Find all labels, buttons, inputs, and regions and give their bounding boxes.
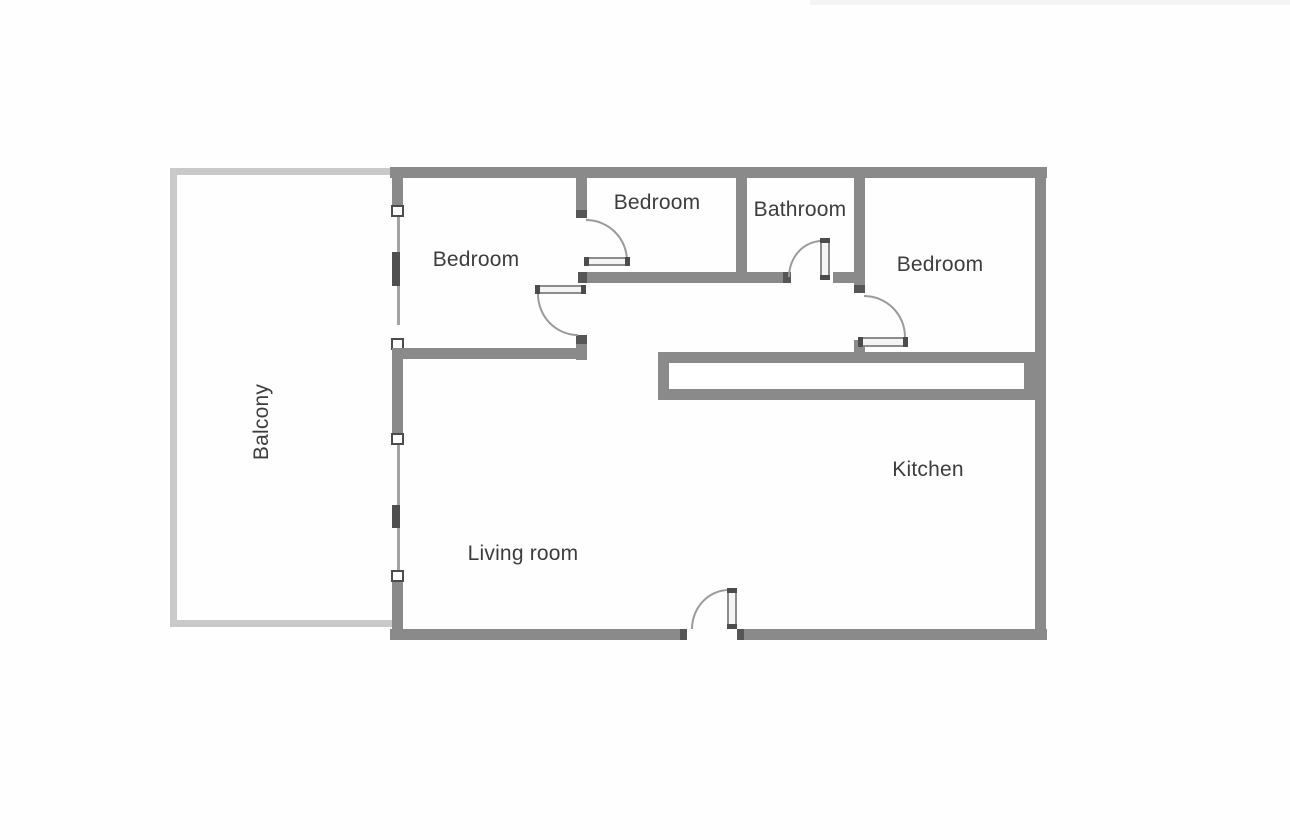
entry-door-jamb-left	[680, 629, 687, 640]
exterior-wall-left-middle	[392, 350, 403, 433]
door-edge-cap	[903, 337, 908, 347]
exterior-wall-bottom-right	[737, 629, 1047, 640]
door-edge-cap	[535, 285, 540, 294]
scan-artifact-strip	[810, 0, 1290, 5]
wall-bedroom-bathroom-divider	[736, 178, 747, 272]
entry-door-leaf	[727, 588, 737, 629]
entry-door-jamb-right	[737, 629, 744, 640]
exterior-wall-right	[1035, 167, 1046, 640]
left-bedroom-door-jamb	[576, 335, 587, 344]
bathroom-door-leaf	[820, 238, 830, 280]
balcony-window-2-panel	[392, 505, 400, 528]
entry-door-swing-arc	[691, 589, 729, 629]
door-hinge-cap	[581, 285, 586, 294]
wall-bathroom-bedroom-divider	[854, 178, 865, 293]
room-label-kitchen: Kitchen	[892, 458, 963, 482]
balcony-window-2-jamb-bottom	[391, 570, 404, 582]
door-hinge-cap	[820, 275, 830, 280]
bathroom-door-swing-arc	[788, 240, 822, 277]
balcony-window-1-jamb-top	[391, 205, 404, 217]
door-edge-cap	[727, 588, 737, 593]
room-label-balcony: Balcony	[250, 384, 274, 460]
room-label-bathroom: Bathroom	[754, 198, 847, 222]
balcony-wall-bottom	[170, 620, 402, 627]
exterior-wall-left-upper	[392, 167, 403, 205]
balcony-window-1-panel	[392, 252, 400, 286]
room-label-bedroom-right: Bedroom	[897, 253, 984, 277]
wall-middle-bedroom-bottom	[578, 272, 790, 283]
door-edge-cap	[820, 238, 830, 243]
balcony-window-2-jamb-top	[391, 433, 404, 445]
room-label-living-room: Living room	[468, 542, 579, 566]
right-bedroom-door-jamb	[854, 285, 865, 293]
door-hinge-cap	[858, 337, 863, 347]
middle-bedroom-door-jamb	[576, 210, 587, 218]
right-bedroom-door-leaf	[858, 337, 908, 347]
left-bedroom-door-leaf	[535, 285, 586, 294]
balcony-wall-left	[170, 168, 177, 627]
hall-wall-end-cap	[578, 272, 587, 283]
room-label-bedroom-middle: Bedroom	[614, 191, 701, 215]
middle-bedroom-door-swing-arc	[586, 219, 628, 261]
left-bedroom-door-swing-arc	[537, 294, 578, 336]
door-hinge-cap	[584, 257, 589, 266]
wall-kitchen-corridor-hollow	[658, 352, 1035, 400]
door-hinge-cap	[727, 624, 737, 629]
exterior-wall-bottom-left	[390, 629, 687, 640]
balcony-wall-top	[170, 168, 402, 175]
floor-plan: Balcony Bedroom Bedroom Bathroom Bedroom…	[0, 0, 1290, 840]
wall-left-bedroom-bottom	[392, 348, 587, 359]
exterior-wall-top	[390, 167, 1047, 178]
door-edge-cap	[625, 257, 630, 266]
room-label-bedroom-left: Bedroom	[433, 248, 520, 272]
exterior-wall-left-lower	[392, 582, 403, 640]
middle-bedroom-door-leaf	[584, 257, 630, 266]
right-bedroom-door-swing-arc	[864, 295, 906, 337]
